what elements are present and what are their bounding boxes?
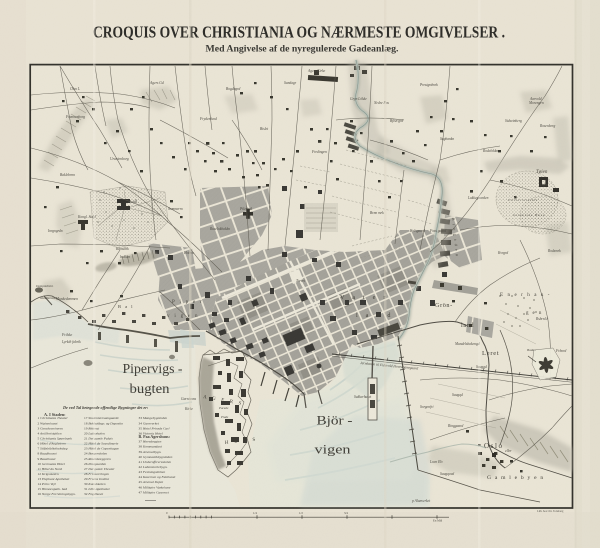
svg-text:Saugqd: Saugqd xyxy=(452,393,463,397)
svg-text:Plads: Plads xyxy=(220,415,229,419)
svg-text:V a t e r: V a t e r xyxy=(340,294,389,301)
svg-text:42 Laboratoriebygn.: 42 Laboratoriebygn. xyxy=(139,465,168,469)
svg-text:Oslo: Oslo xyxy=(484,442,504,450)
svg-text:Parade: Parade xyxy=(218,406,229,410)
svg-text:Lakkegaarden: Lakkegaarden xyxy=(467,196,489,200)
svg-text:Kolsgaard: Kolsgaard xyxy=(409,229,425,233)
svg-text:Kirke: Kirke xyxy=(184,407,193,411)
svg-text:12 Krigsskolen: 12 Krigsskolen xyxy=(38,472,59,476)
svg-text:botaniske Have: botaniske Have xyxy=(513,213,545,217)
svg-text:Sauggd: Sauggd xyxy=(476,365,487,369)
svg-text:Olsn L: Olsn L xyxy=(70,87,80,91)
svg-text:17 Studenterexamgaarde: 17 Studenterexamgaarde xyxy=(84,416,119,420)
svg-text:1/2: 1/2 xyxy=(299,511,303,515)
svg-text:Ltgrn: Ltgrn xyxy=(539,183,548,187)
svg-text:37 Hovedvagten: 37 Hovedvagten xyxy=(139,440,162,444)
svg-text:40 Gymnastikbygninden: 40 Gymnastikbygninden xyxy=(139,455,173,459)
svg-text:Foss gaard: Foss gaard xyxy=(429,229,446,233)
svg-text:Sidsvinberg: Sidsvinberg xyxy=(505,119,522,123)
svg-text:47 Militaire Casernet: 47 Militaire Casernet xyxy=(139,490,170,494)
svg-text:Lyrkib fabrik: Lyrkib fabrik xyxy=(61,340,81,344)
svg-text:18 Bokholdsgr. og Deposito: 18 Bokholdsgr. og Deposito xyxy=(84,421,123,425)
svg-text:33 Mangebygninden: 33 Mangebygninden xyxy=(139,416,168,420)
svg-text:Frydenlund: Frydenlund xyxy=(199,117,217,121)
svg-text:Agers Gd: Agers Gd xyxy=(149,81,164,85)
svg-text:Gryn Lökke: Gryn Lökke xyxy=(350,97,367,101)
svg-text:Leret: Leret xyxy=(482,350,499,357)
svg-text:B. Paa Agershuus:: B. Paa Agershuus: xyxy=(139,434,170,439)
svg-text:Sandagr: Sandagr xyxy=(284,81,297,85)
svg-text:bakken: bakken xyxy=(120,255,130,259)
svg-text:Sukkerhuset: Sukkerhuset xyxy=(354,395,372,399)
svg-text:Rodsmrk: Rodsmrk xyxy=(547,249,561,253)
svg-text:3/4: 3/4 xyxy=(344,511,348,515)
svg-text:41 Underofficersskolen: 41 Underofficersskolen xyxy=(139,460,172,464)
svg-text:Garnisons: Garnisons xyxy=(181,397,197,401)
svg-text:Agers Kirke: Agers Kirke xyxy=(307,69,326,73)
svg-text:3 Geneluseriseren: 3 Geneluseriseren xyxy=(38,426,64,430)
svg-text:Aarvold: Aarvold xyxy=(529,97,542,101)
svg-text:v i g e n: v i g e n xyxy=(167,314,199,319)
svg-text:Rodelokkn: Rodelokkn xyxy=(482,149,498,153)
svg-text:44 Kasernen og Fakthuset: 44 Kasernen og Fakthuset xyxy=(139,475,177,479)
svg-text:B a l: B a l xyxy=(118,304,134,309)
svg-text:Wandkunsten: Wandkunsten xyxy=(40,296,57,300)
svg-text:Frannenborg: Frannenborg xyxy=(65,115,85,119)
svg-text:21 Det gamle Palais: 21 Det gamle Palais xyxy=(84,437,113,441)
svg-text:Ringgaard: Ringgaard xyxy=(447,424,463,428)
svg-text:1 Christiania Theater: 1 Christiania Theater xyxy=(38,416,69,420)
svg-text:28 Frimurerlogen: 28 Frimurerlogen xyxy=(84,472,109,476)
svg-text:land: land xyxy=(461,322,474,329)
svg-text:Sorgenfri: Sorgenfri xyxy=(420,405,433,409)
svg-text:19 Ritterat: 19 Ritterat xyxy=(84,426,100,430)
svg-text:Bodø -: Bodø - xyxy=(527,348,536,352)
svg-text:Torvet: Torvet xyxy=(296,279,306,283)
svg-text:2 Waisenhuset: 2 Waisenhuset xyxy=(38,421,59,425)
svg-text:22 Hôtel de Scandinavie: 22 Hôtel de Scandinavie xyxy=(84,442,119,446)
svg-text:g e n: g e n xyxy=(526,311,543,316)
svg-text:Ruselokbakkn: Ruselokbakkn xyxy=(209,227,230,231)
svg-text:En Miil: En Miil xyxy=(433,519,442,523)
svg-text:27 Det gamle Theater: 27 Det gamle Theater xyxy=(84,467,115,471)
svg-text:Sommerro: Sommerro xyxy=(168,207,183,211)
svg-text:24 Borgerskolen: 24 Borgerskolen xyxy=(84,452,107,456)
svg-text:9 Basalhuset: 9 Basalhuset xyxy=(38,457,57,461)
svg-text:5 Christiania Sparebank: 5 Christiania Sparebank xyxy=(38,437,73,441)
svg-text:Universitetets: Universitetets xyxy=(508,198,538,202)
svg-text:Kvrgrd: Kvrgrd xyxy=(497,251,508,255)
svg-text:13 Elephant Apotheket: 13 Elephant Apotheket xyxy=(38,477,71,481)
svg-text:vigen: vigen xyxy=(315,442,352,457)
svg-text:31 Lille Apotheket: 31 Lille Apotheket xyxy=(84,487,111,491)
svg-text:8 Raadhuuset: 8 Raadhuuset xyxy=(38,452,58,456)
svg-text:6 Hôtel d'Angleterre: 6 Hôtel d'Angleterre xyxy=(38,442,67,446)
svg-text:Grön-: Grön- xyxy=(435,302,453,309)
svg-text:Saugqvad: Saugqvad xyxy=(440,472,454,476)
svg-text:Mandelsbakengd: Mandelsbakengd xyxy=(454,342,480,346)
svg-text:Sagbankn: Sagbankn xyxy=(440,137,454,141)
svg-text:Loen Elv: Loen Elv xyxy=(429,460,443,464)
svg-text:G a m l e b y e n: G a m l e b y e n xyxy=(487,475,544,481)
svg-text:35 Hotel Prinsds Carl: 35 Hotel Prinsds Carl xyxy=(139,426,170,430)
svg-text:Baklebrnn: Baklebrnn xyxy=(60,173,75,177)
svg-text:Fredingen: Fredingen xyxy=(311,150,327,154)
svg-text:Frbord: Frbord xyxy=(555,349,566,353)
svg-text:Tøien: Tøien xyxy=(536,170,548,175)
svg-text:Munkedammen: Munkedammen xyxy=(55,297,78,301)
svg-text:P i p e r: P i p e r xyxy=(172,300,204,305)
svg-text:Bjlsn grd: Bjlsn grd xyxy=(390,119,403,123)
svg-text:23 Hôtel de Copenhague: 23 Hôtel de Copenhague xyxy=(84,447,119,451)
svg-text:Med Angivelse af de nyregulere: Med Angivelse af de nyregulerede Gadeanl… xyxy=(206,44,399,54)
svg-text:4 Artilleristablen: 4 Artilleristablen xyxy=(38,431,62,435)
svg-text:34 Garnverket: 34 Garnverket xyxy=(139,421,160,425)
svg-text:14 Prins Vejl: 14 Prins Vejl xyxy=(38,482,56,486)
svg-text:Frilske: Frilske xyxy=(61,333,73,337)
svg-text:46 Militaire Vaskehuse: 46 Militaire Vaskehuse xyxy=(139,485,171,489)
svg-text:Uranienborg: Uranienborg xyxy=(110,157,129,161)
svg-text:eller: eller xyxy=(505,449,512,453)
svg-text:Björ -: Björ - xyxy=(317,413,353,428)
svg-text:E n e r h a u -: E n e r h a u - xyxy=(500,293,551,298)
svg-text:29 Fruens Institut: 29 Fruens Institut xyxy=(84,477,110,481)
svg-text:Brnn mrk: Brnn mrk xyxy=(370,211,384,215)
svg-text:Inrgngrdn: Inrgngrdn xyxy=(47,229,63,233)
svg-text:bugten: bugten xyxy=(130,381,170,396)
svg-text:15 Homoeopath. bad: 15 Homoeopath. bad xyxy=(38,487,68,491)
svg-text:l a n d: l a n d xyxy=(356,312,394,319)
svg-text:De ved Tal betegnede offentlig: De ved Tal betegnede offentlige Bygninge… xyxy=(62,405,149,410)
svg-text:Rsbrnl.h: Rsbrnl.h xyxy=(535,317,548,321)
svg-text:10 Germania Hotel: 10 Germania Hotel xyxy=(38,462,65,466)
svg-text:Bislet: Bislet xyxy=(260,127,269,131)
svg-text:Holmn: Holmn xyxy=(183,251,194,255)
svg-text:1/4: 1/4 xyxy=(253,511,257,515)
svg-text:Rosenberg: Rosenberg xyxy=(539,124,555,128)
svg-text:CROQUIS OVER CHRISTIANIA OG NÆ: CROQUIS OVER CHRISTIANIA OG NÆRMESTE OMG… xyxy=(93,23,505,42)
svg-text:39 Arsenalbygn.: 39 Arsenalbygn. xyxy=(139,450,162,454)
svg-text:Dampskibsbr.: Dampskibsbr. xyxy=(35,284,54,288)
svg-text:Pipervigs -: Pipervigs - xyxy=(123,361,184,376)
svg-text:7 Stiftsbibliotheksbyg: 7 Stiftsbibliotheksbyg xyxy=(38,447,68,451)
svg-text:p Alunverket: p Alunverket xyxy=(411,499,431,503)
svg-text:25 Rosenborggrten: 25 Rosenborggrten xyxy=(84,457,111,461)
svg-text:38 Kommandant: 38 Kommandant xyxy=(139,445,163,449)
svg-text:45 Arsenal Depot: 45 Arsenal Depot xyxy=(139,480,165,484)
svg-text:Prestgrdmrk: Prestgrdmrk xyxy=(419,83,438,87)
svg-text:Slottet: Slottet xyxy=(128,200,138,204)
svg-text:Morengen: Morengen xyxy=(528,101,544,105)
svg-text:43 Festningskirken: 43 Festningskirken xyxy=(139,470,166,474)
svg-text:Nedre Fos: Nedre Fos xyxy=(373,101,390,105)
svg-text:Bogdngrd: Bogdngrd xyxy=(226,87,240,91)
svg-text:16 Norge Forretningsbygn.: 16 Norge Forretningsbygn. xyxy=(38,492,76,496)
svg-text:11 Hôtel du Nord: 11 Hôtel du Nord xyxy=(38,467,63,471)
svg-text:Pilestrdt: Pilestrdt xyxy=(239,207,253,211)
svg-text:Lith. hos Chr. Tonsberg: Lith. hos Chr. Tonsberg xyxy=(537,510,564,513)
